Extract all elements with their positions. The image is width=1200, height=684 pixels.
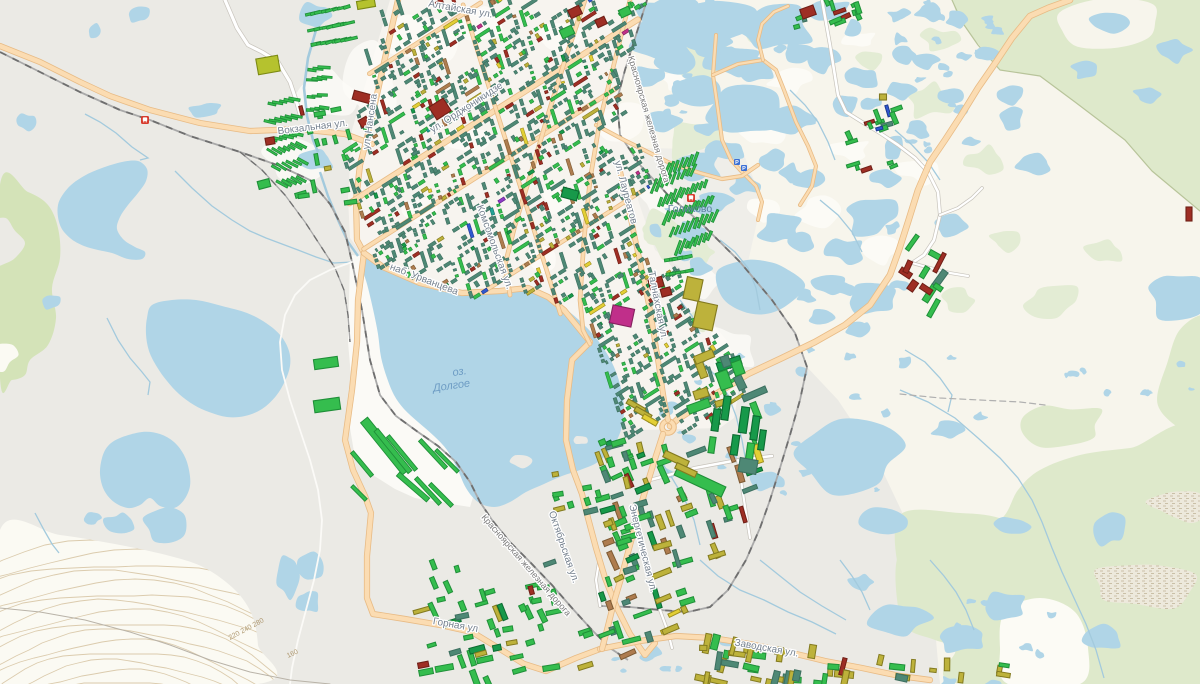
svg-text:Голиково: Голиково [668,203,713,215]
svg-text:P: P [742,166,746,172]
svg-text:P: P [735,160,739,166]
svg-text:оз.: оз. [452,365,468,379]
